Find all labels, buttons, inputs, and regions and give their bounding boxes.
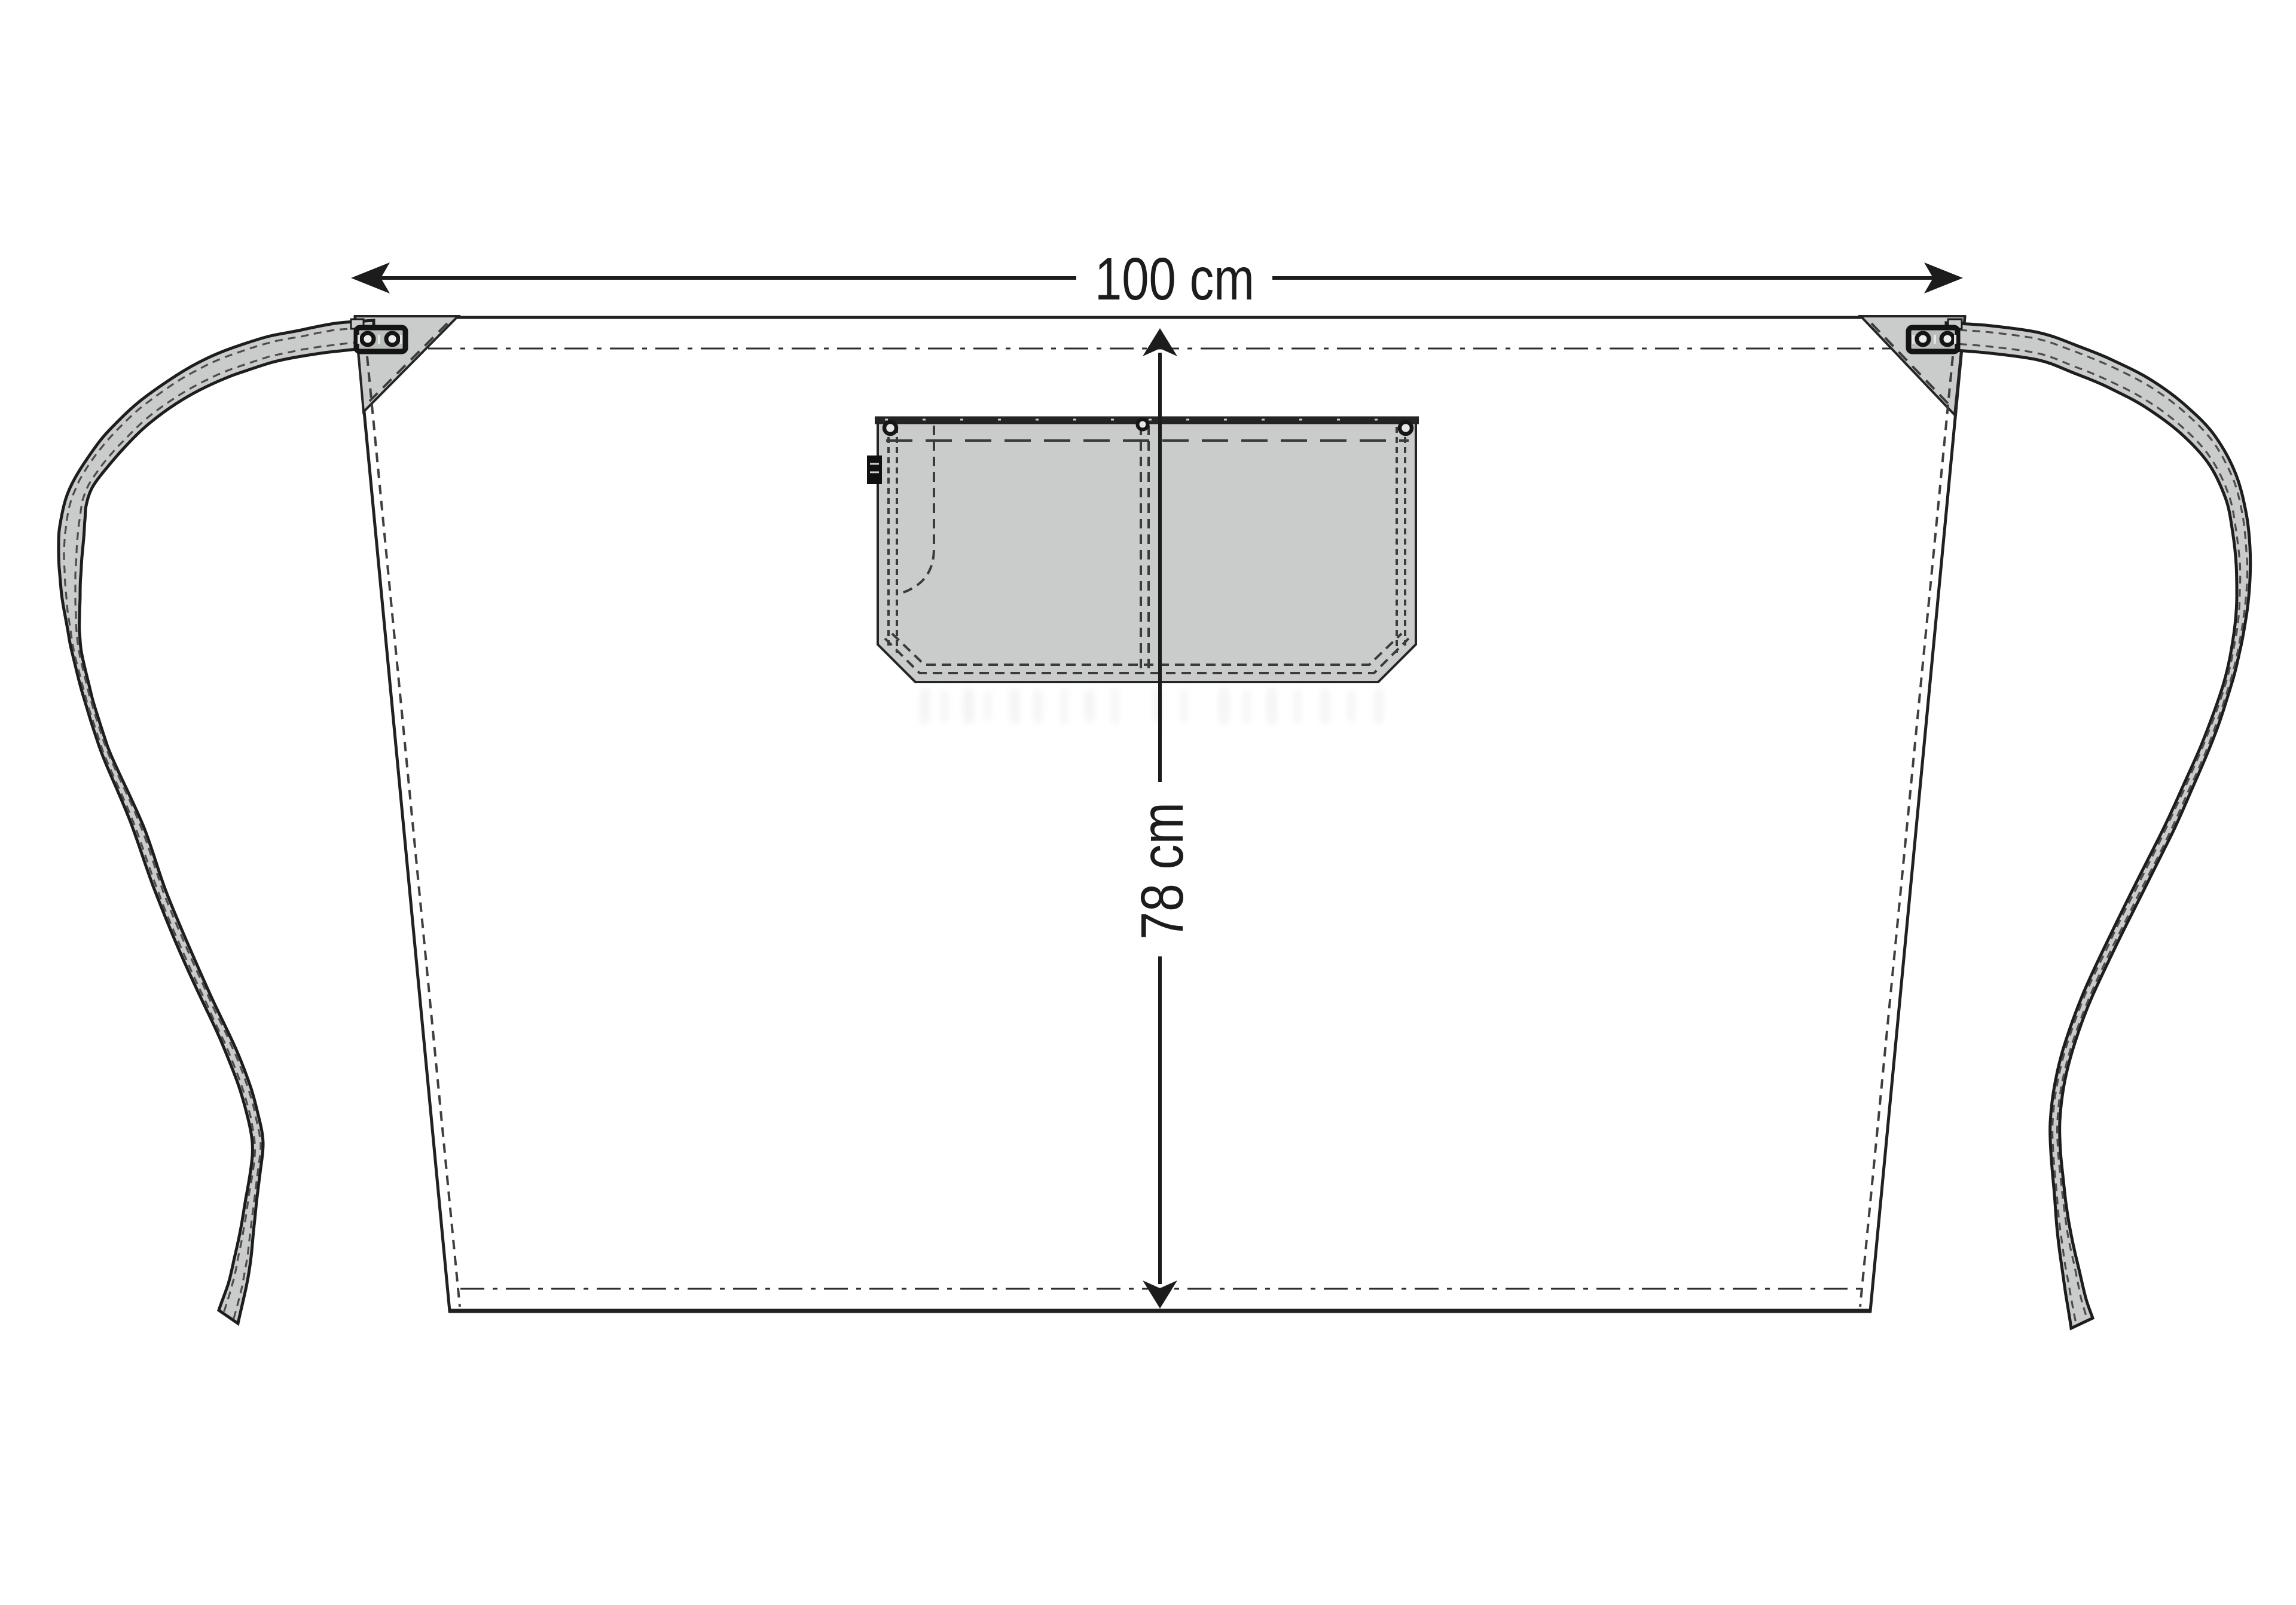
svg-text:78 cm: 78 cm [1129, 802, 1196, 940]
svg-text:100 cm: 100 cm [1095, 246, 1254, 313]
